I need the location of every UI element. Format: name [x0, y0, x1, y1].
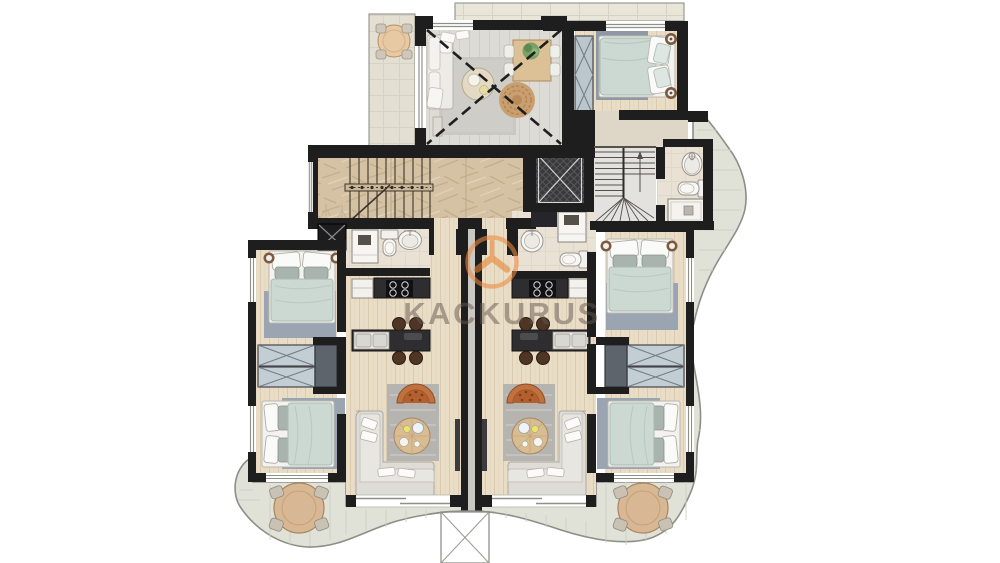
- svg-text:KACKURUS: KACKURUS: [403, 296, 600, 331]
